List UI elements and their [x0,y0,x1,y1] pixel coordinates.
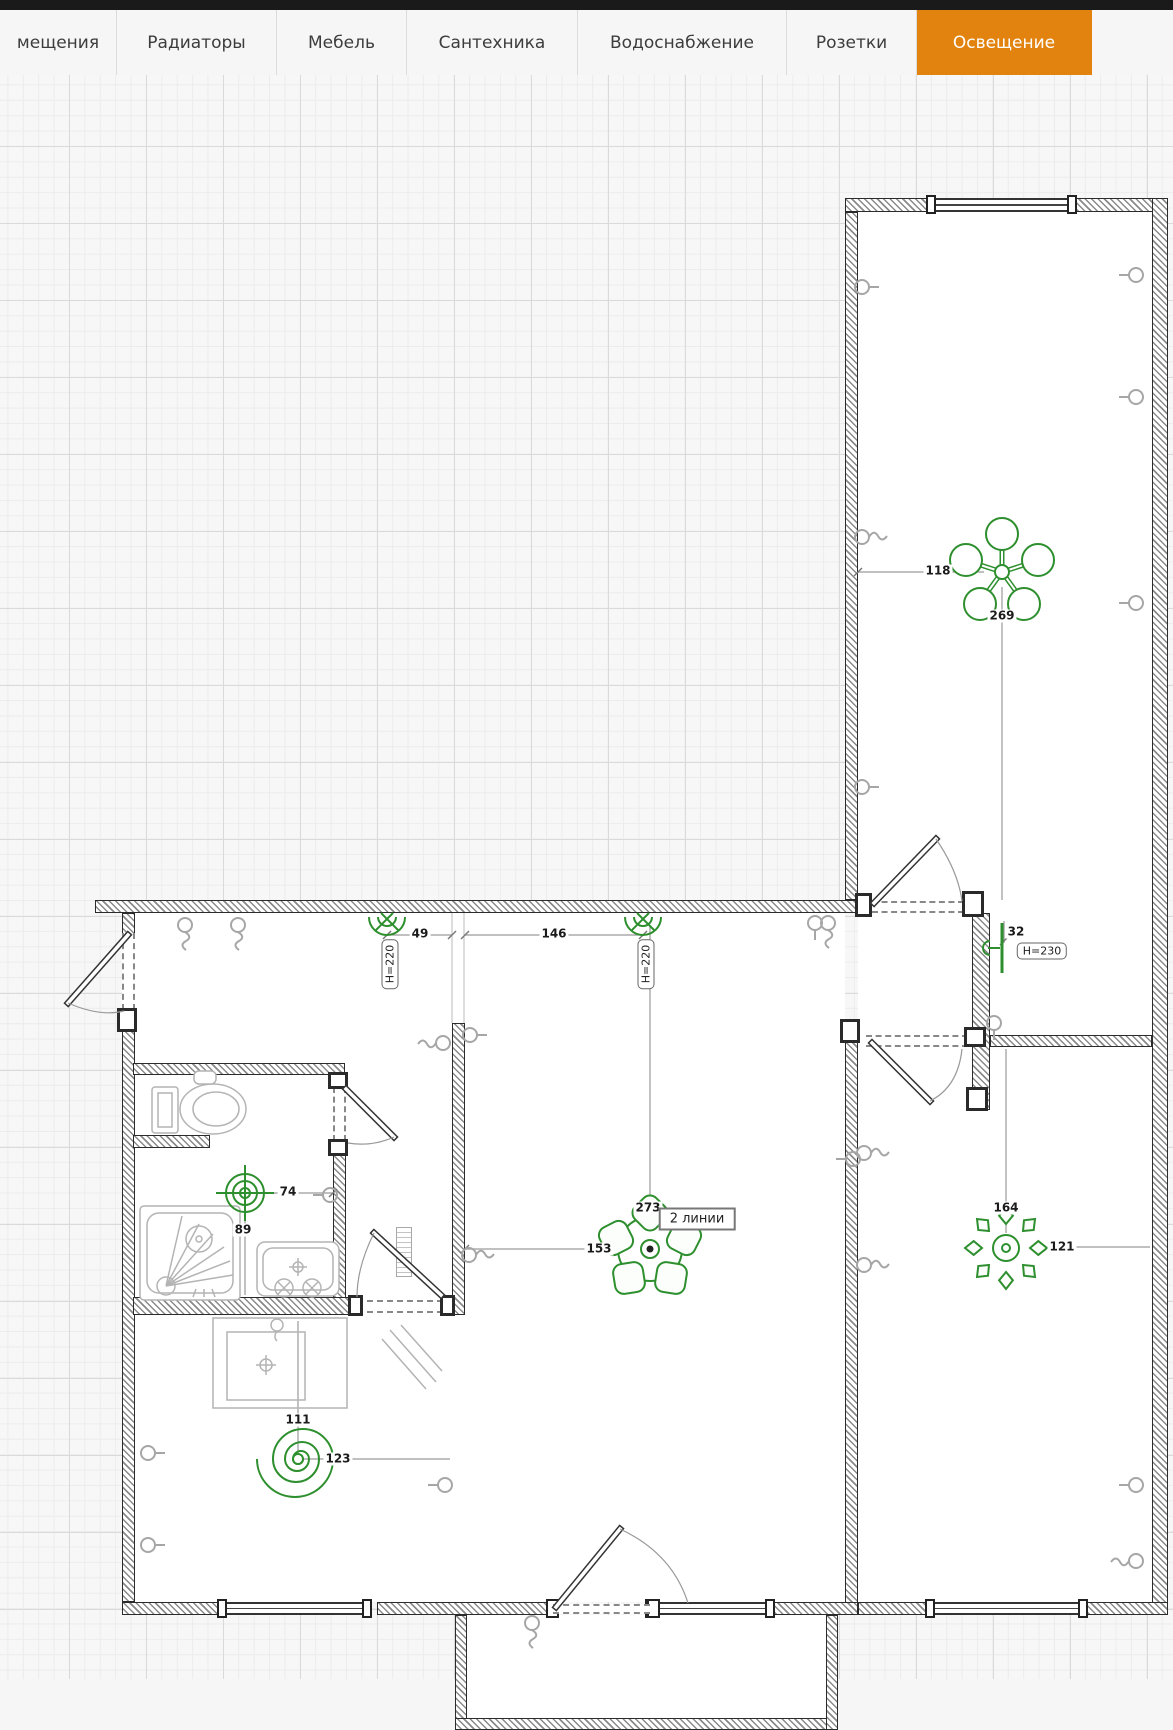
height-badge: H=220 [638,939,655,989]
dim-118-label: 118 [923,565,952,578]
door-top-room[interactable] [874,839,962,903]
dim-164-label: 164 [991,1202,1020,1215]
height-badge: H=220 [382,939,399,989]
door-entrance[interactable] [68,935,128,1013]
dim-74-label: 74 [278,1186,299,1199]
dim-121-label: 121 [1047,1241,1076,1254]
kitchen-sink-unit[interactable] [213,1318,442,1408]
two-lines-note: 2 линии [659,1208,736,1231]
dim-89-label: 89 [233,1224,254,1237]
dim-269-label: 269 [987,610,1016,623]
bathroom-sink[interactable] [257,1242,339,1297]
dim-153-label: 153 [584,1243,613,1256]
tab-santekhnika[interactable]: Сантехника [407,10,578,75]
tab-radiatory[interactable]: Радиаторы [117,10,277,75]
tab-mebel[interactable]: Мебель [277,10,407,75]
dim-111-label: 111 [283,1414,312,1427]
tab-pomeshcheniya[interactable]: мещения [0,10,117,75]
wall-balcony [455,1718,838,1730]
dim-32-label: 32 [1006,926,1027,939]
tab-vodosnabzhenie[interactable]: Водоснабжение [578,10,787,75]
door-balcony[interactable] [556,1529,688,1607]
dim-49-label: 49 [410,928,431,941]
top-black-strip [0,0,1173,10]
spiral-pendant-icon[interactable] [257,1429,333,1497]
opening-edges [452,913,464,1023]
wall-light-icon[interactable] [983,923,1002,973]
dim-123-label: 123 [323,1453,352,1466]
tab-rozetki[interactable]: Розетки [787,10,917,75]
fixture-8-petal-icon[interactable] [965,1207,1047,1289]
door-kitchen[interactable] [357,1233,441,1297]
tab-osveshchenie[interactable]: Освещение [917,10,1092,75]
shower-cabin[interactable] [140,1206,240,1300]
door-wc[interactable] [346,1089,394,1144]
height-badge: H=230 [1017,943,1067,960]
door-bedroom[interactable] [872,1043,962,1101]
toilet[interactable] [152,1071,246,1134]
tab-bar: мещения Радиаторы Мебель Сантехника Водо… [0,10,1173,76]
dimension-lines [245,568,1150,1459]
floor-plan-canvas[interactable]: 118 269 49 146 32 74 89 273 153 111 123 … [0,75,1173,1679]
dim-146-label: 146 [539,928,568,941]
